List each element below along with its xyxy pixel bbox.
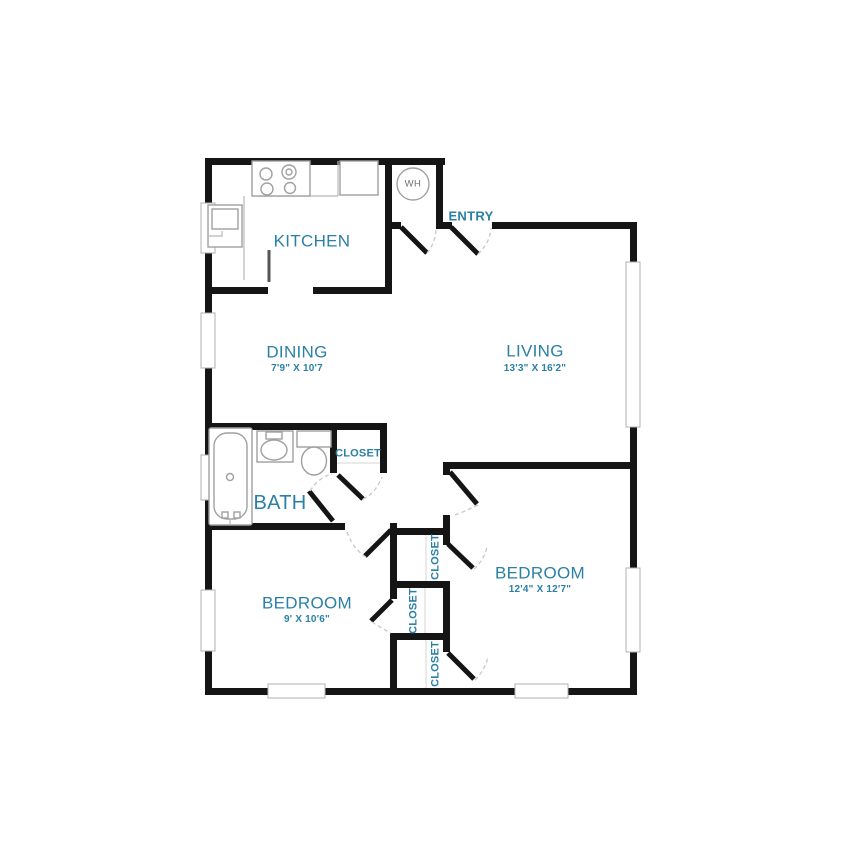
bath-label: BATH [253, 493, 306, 513]
dining-label: DINING [266, 344, 327, 361]
bedroom-left-dimensions: 9' X 10'6" [284, 615, 330, 625]
kitchen-fixtures [208, 161, 429, 282]
living-label: LIVING [506, 343, 564, 360]
closet-bottom-label: CLOSET [431, 641, 442, 687]
entry-label: ENTRY [448, 210, 493, 223]
refrigerator-icon [340, 161, 378, 195]
floor-plan-drawing [0, 0, 844, 844]
interior-walls [205, 158, 637, 695]
living-dimensions: 13'3" X 16'2" [504, 364, 566, 374]
bath-sink-icon [257, 431, 293, 462]
closet-middle-label: CLOSET [409, 588, 420, 634]
bedroom-right-dimensions: 12'4" X 12'7" [509, 585, 571, 595]
bedroom-left-label: BEDROOM [262, 595, 352, 612]
kitchen-sink-icon [208, 205, 242, 247]
dining-dimensions: 7'9" X 10'7 [271, 364, 323, 374]
hall-closet-label: CLOSET [335, 449, 381, 460]
toilet-icon [297, 431, 331, 475]
closet-top-label: CLOSET [431, 534, 442, 580]
stove-icon [252, 161, 310, 196]
bedroom-right-label: BEDROOM [495, 565, 585, 582]
closet-rod-lines [337, 463, 426, 688]
water-heater-label: WH [405, 179, 422, 189]
floor-plan: KITCHEN ENTRY WH DINING 7'9" X 10'7 LIVI… [0, 0, 844, 844]
kitchen-label: KITCHEN [274, 233, 351, 250]
bathtub-icon [209, 428, 252, 525]
